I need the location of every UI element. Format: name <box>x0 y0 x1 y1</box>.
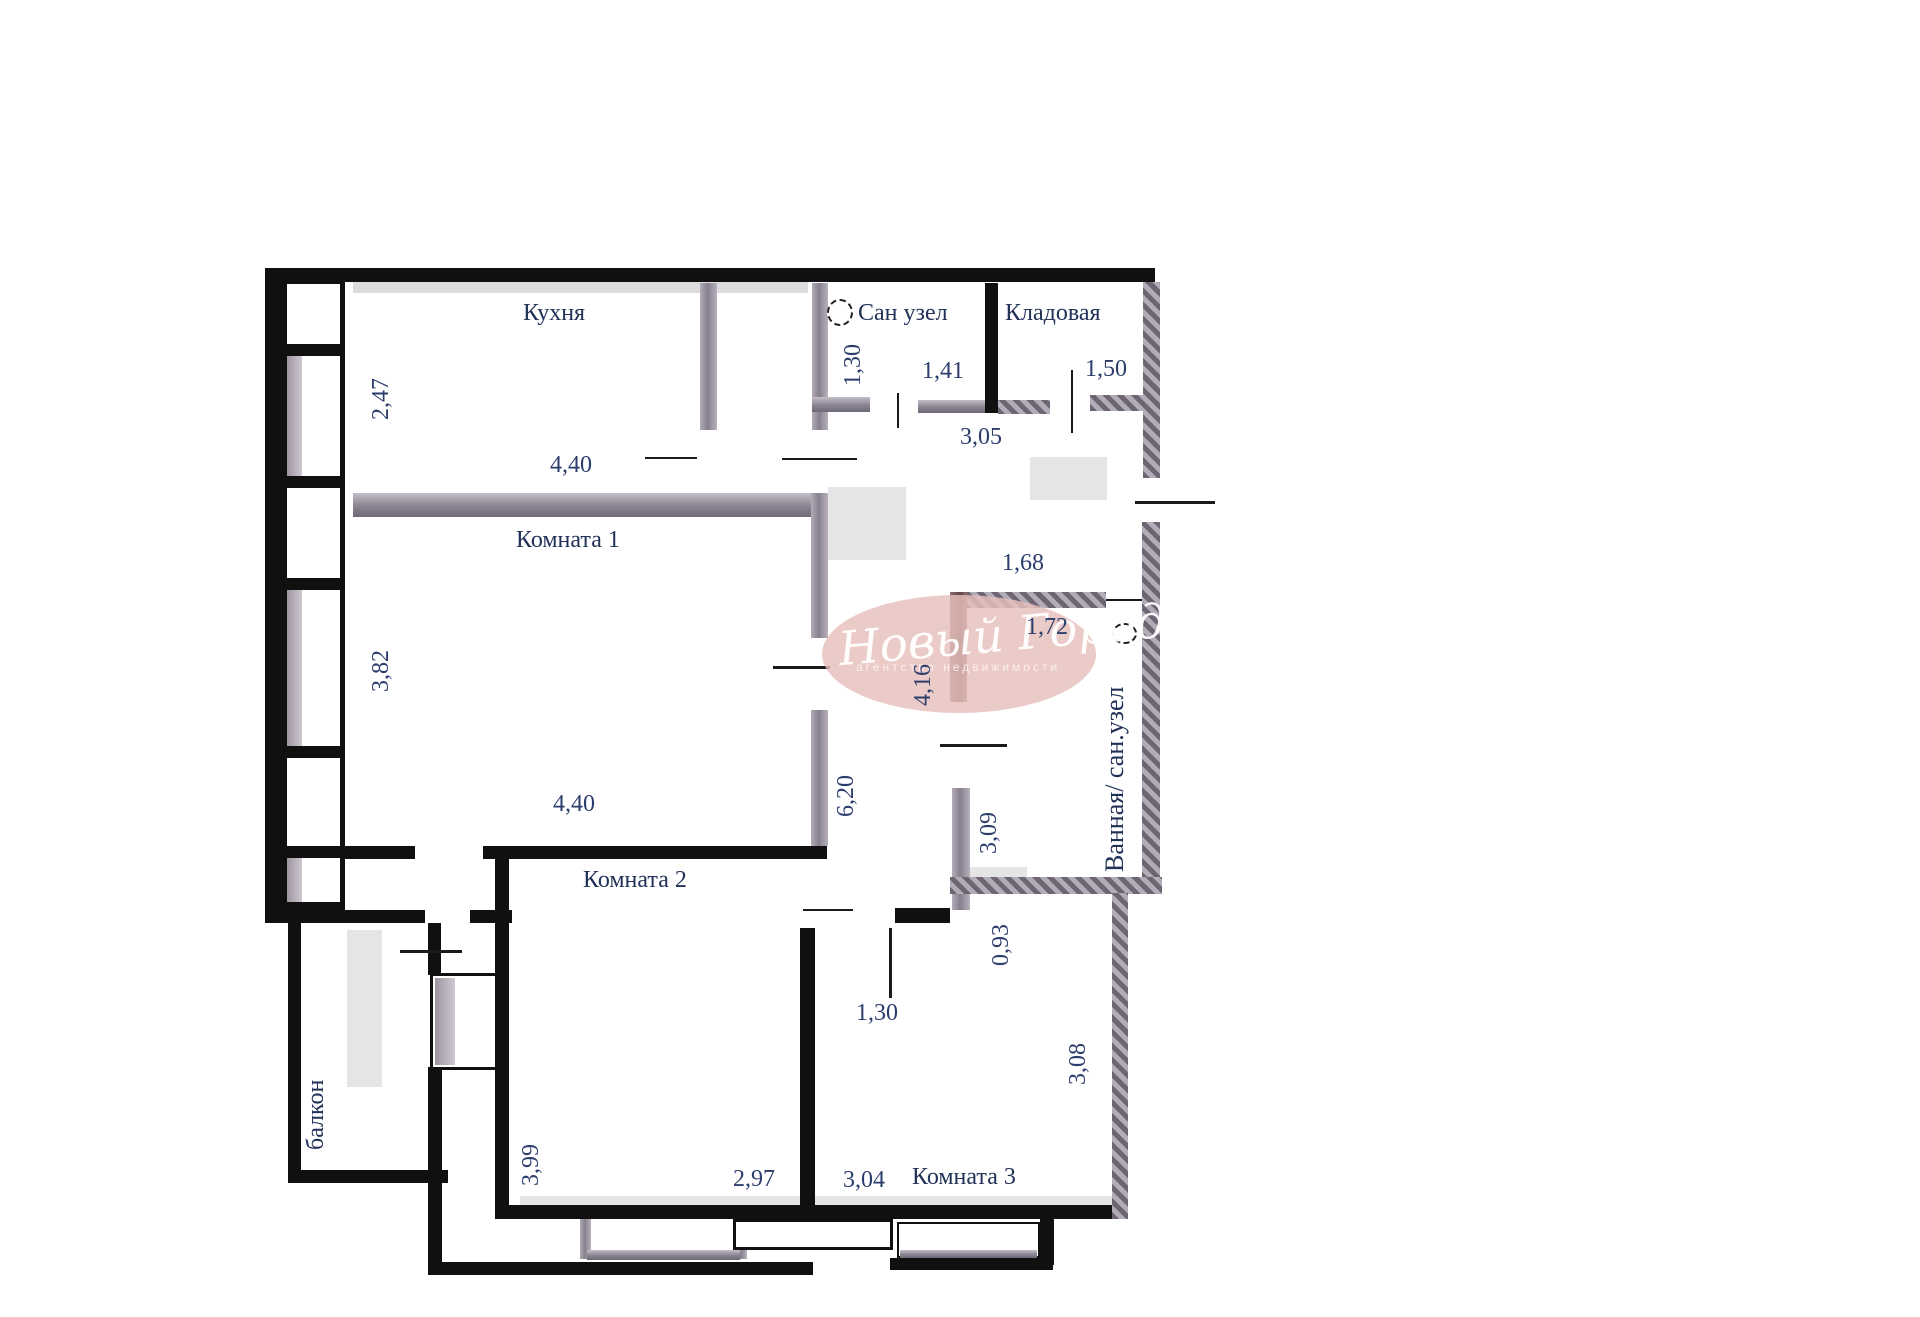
entry-door-line <box>1135 501 1215 504</box>
dim-room3-door-width: 1,30 <box>856 1000 898 1027</box>
room1-label: Комната 1 <box>516 527 620 554</box>
dim-room1-width: 4,40 <box>553 791 595 818</box>
hallway-floor-shade <box>828 487 906 560</box>
corridor-left-wall-upper <box>811 493 828 638</box>
corridor-end-jamb <box>895 908 950 923</box>
dim-sanuzel-depth: 1,30 <box>840 332 867 386</box>
floor-plan: Новый Город агентство недвижимости Кухня… <box>0 0 1920 1317</box>
left-window-1 <box>287 284 340 344</box>
wall-right-outer-lower <box>1142 522 1160 893</box>
bathroom-label: Ванная/ сан.узел <box>1100 650 1130 872</box>
dim-kitchen-depth: 2,47 <box>368 356 395 420</box>
hallway-door-line <box>782 458 857 460</box>
wall-top-outer <box>265 268 1155 282</box>
corridor-end-door-line <box>803 909 853 911</box>
dim-room3-depth: 3,08 <box>1065 1025 1092 1085</box>
dim-corridor-length: 6,20 <box>833 755 860 817</box>
room1-door-line <box>773 666 830 669</box>
balcony-label: балкон <box>303 1050 330 1150</box>
left-window-6-glass <box>287 858 302 902</box>
left-window-4-glass <box>287 590 302 746</box>
kitchen-right-wall <box>700 283 717 430</box>
kladovaya-door-line <box>1071 370 1073 433</box>
dim-room3-width: 3,04 <box>843 1167 885 1194</box>
kitchen-room1-divider <box>353 493 827 517</box>
dim-bathroom-depth: 3,09 <box>976 800 1003 854</box>
sanuzel-bottom-wall-b <box>918 400 985 413</box>
left-window-2-glass <box>287 356 302 476</box>
bay-window-3-sill <box>900 1250 1037 1258</box>
room3-right-wall <box>1112 893 1128 1219</box>
balcony-floor-shade <box>347 930 382 1087</box>
sanuzel-bottom-wall-a <box>812 397 870 412</box>
room1-bottom-wall-b <box>483 846 827 859</box>
kladovaya-bottom-wall-b <box>1090 395 1143 411</box>
bay-bottom-wall-right <box>890 1258 1053 1270</box>
sanuzel-fixture-icon <box>827 299 853 326</box>
kitchen-door-line <box>645 457 697 459</box>
dim-sanuzel-width: 1,41 <box>922 358 964 385</box>
bay-window-1-sill <box>587 1250 740 1260</box>
kitchen-label: Кухня <box>523 300 585 327</box>
sanuzel-kladovaya-wall <box>985 283 998 413</box>
dim-room2-depth: 3,99 <box>518 1126 545 1186</box>
kladovaya-label: Кладовая <box>1005 300 1101 327</box>
dim-entry-width: 1,68 <box>1002 550 1044 577</box>
wall-right-outer-upper <box>1143 282 1160 478</box>
balcony-window-glass <box>435 978 455 1065</box>
room1-bottom-wall-a <box>345 846 415 859</box>
wall-outer-below-balcony <box>428 1067 442 1275</box>
room2-label: Комната 2 <box>583 867 687 894</box>
balcony-door-line <box>400 950 462 953</box>
wall-bottom-left-a <box>265 910 425 923</box>
dim-hall-length-upper: 4,16 <box>910 648 937 706</box>
kitchen-top-shade <box>353 282 808 293</box>
dim-room2-width: 2,97 <box>733 1166 775 1193</box>
kladovaya-bottom-wall-a <box>998 400 1050 414</box>
watermark-subtitle: агентство недвижимости <box>856 660 1060 674</box>
corridor-left-wall-lower <box>811 710 828 846</box>
balcony-door-jamb <box>428 923 441 975</box>
bay-bottom-wall-left <box>428 1262 813 1275</box>
left-window-5 <box>287 758 340 846</box>
dim-kladovaya-width: 1,50 <box>1085 356 1127 383</box>
entry-floor-shade <box>1030 457 1107 500</box>
sanuzel-door-line <box>897 393 899 428</box>
dim-hallway-width: 3,05 <box>960 424 1002 451</box>
room2-left-wall <box>495 858 509 1218</box>
dim-kitchen-width: 4,40 <box>550 452 592 479</box>
bathroom-sill-shade <box>970 867 1027 877</box>
room3-label: Комната 3 <box>912 1164 1016 1191</box>
dim-niche-depth: 0,93 <box>988 912 1015 966</box>
sanuzel-label: Сан узел <box>858 300 948 327</box>
dim-bathroom-width: 1,72 <box>1026 614 1068 641</box>
bathroom-door-line <box>940 744 1007 747</box>
balcony-bottom-wall <box>288 1170 448 1183</box>
bay-window-2 <box>733 1219 893 1250</box>
room2-room3-divider-wall <box>800 928 815 1218</box>
dim-room1-depth: 3,82 <box>368 628 395 692</box>
bay-right-cap <box>1040 1217 1054 1265</box>
balcony-left-wall <box>288 923 301 1183</box>
room3-door-line <box>889 928 892 998</box>
left-window-3 <box>287 488 340 578</box>
bathroom-bottom-wall <box>950 877 1162 894</box>
